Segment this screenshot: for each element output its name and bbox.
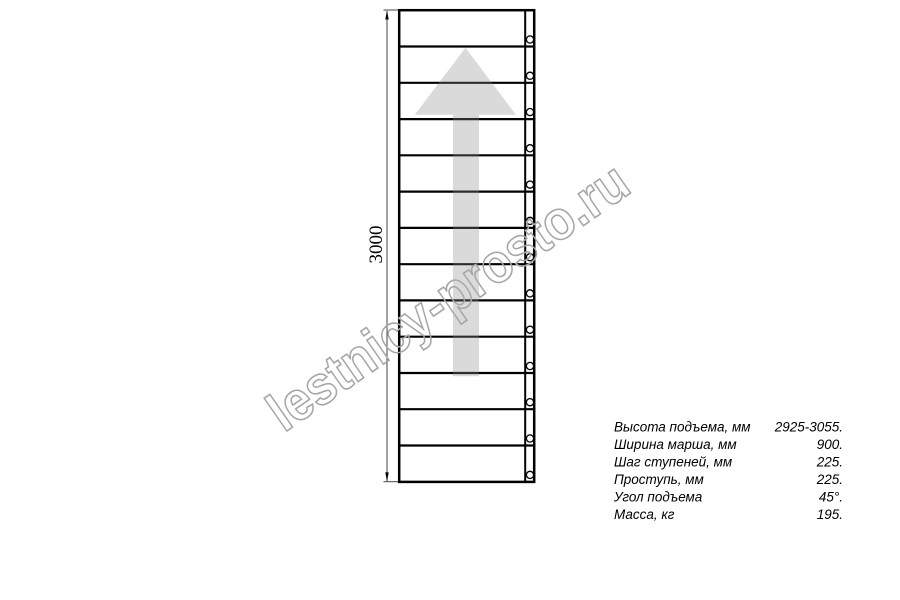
- svg-text:Проступь, мм: Проступь, мм: [614, 472, 704, 487]
- svg-text:Угол подъема: Угол подъема: [613, 490, 703, 505]
- svg-text:900.: 900.: [817, 437, 843, 452]
- svg-text:225.: 225.: [816, 472, 843, 487]
- svg-text:45°.: 45°.: [819, 490, 843, 505]
- svg-text:3000: 3000: [366, 226, 387, 264]
- svg-text:225.: 225.: [816, 455, 843, 470]
- svg-text:2925-3055.: 2925-3055.: [774, 419, 843, 434]
- svg-text:Высота подъема, мм: Высота подъема, мм: [614, 419, 750, 434]
- svg-text:Ширина марша, мм: Ширина марша, мм: [614, 437, 737, 452]
- svg-text:Масса, кг: Масса, кг: [614, 507, 675, 522]
- svg-text:195.: 195.: [817, 507, 843, 522]
- svg-text:Шаг ступеней, мм: Шаг ступеней, мм: [614, 455, 732, 470]
